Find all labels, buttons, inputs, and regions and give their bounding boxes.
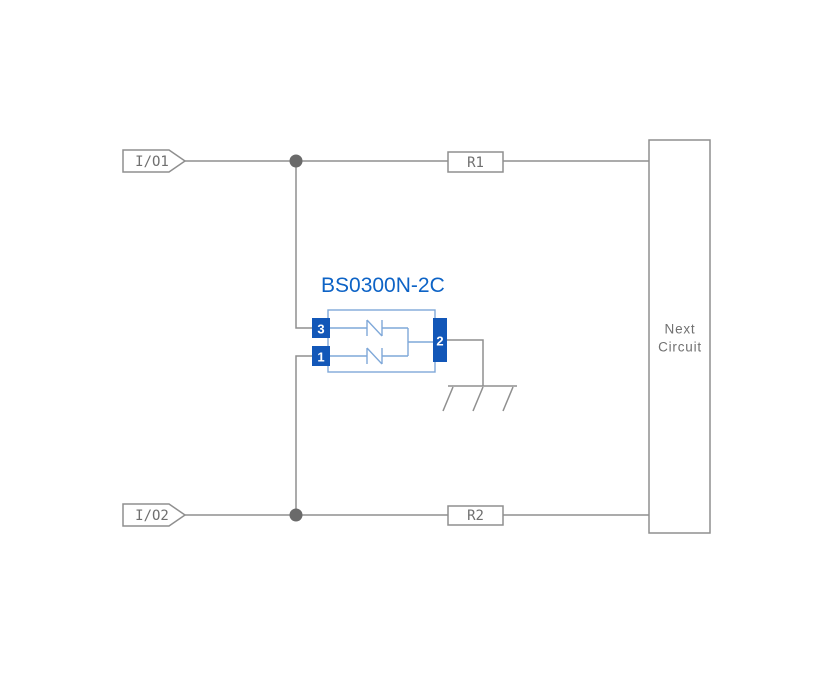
pin1-to-io2-wire — [296, 356, 313, 515]
io1-to-pin3-wire — [296, 161, 313, 328]
circuit-diagram: I/O1 I/O2 R1 R2 Next Circuit BS0300N-2C … — [0, 0, 832, 675]
junction-dot-bottom — [290, 509, 303, 522]
ground-hatch-right — [503, 387, 513, 411]
next-circuit-label-line1: Next — [665, 322, 696, 337]
component-title: BS0300N-2C — [321, 274, 445, 297]
junction-dot-top — [290, 155, 303, 168]
pin-1-number: 1 — [317, 350, 324, 365]
ground-hatch-left — [443, 387, 453, 411]
pin-2-number: 2 — [436, 334, 443, 349]
pin-3-number: 3 — [317, 322, 324, 337]
earth-ground-symbol — [443, 386, 517, 411]
io2-port-label: I/O2 — [135, 508, 169, 524]
next-circuit-label-line2: Circuit — [658, 340, 702, 355]
resistor-r1-label: R1 — [467, 155, 484, 171]
pin2-to-ground-wire — [447, 340, 483, 386]
schematic-canvas: I/O1 I/O2 R1 R2 Next Circuit BS0300N-2C … — [0, 0, 832, 675]
io1-port-label: I/O1 — [135, 154, 169, 170]
next-circuit-box — [649, 140, 710, 533]
ground-hatch-middle — [473, 387, 483, 411]
resistor-r2-label: R2 — [467, 508, 484, 524]
